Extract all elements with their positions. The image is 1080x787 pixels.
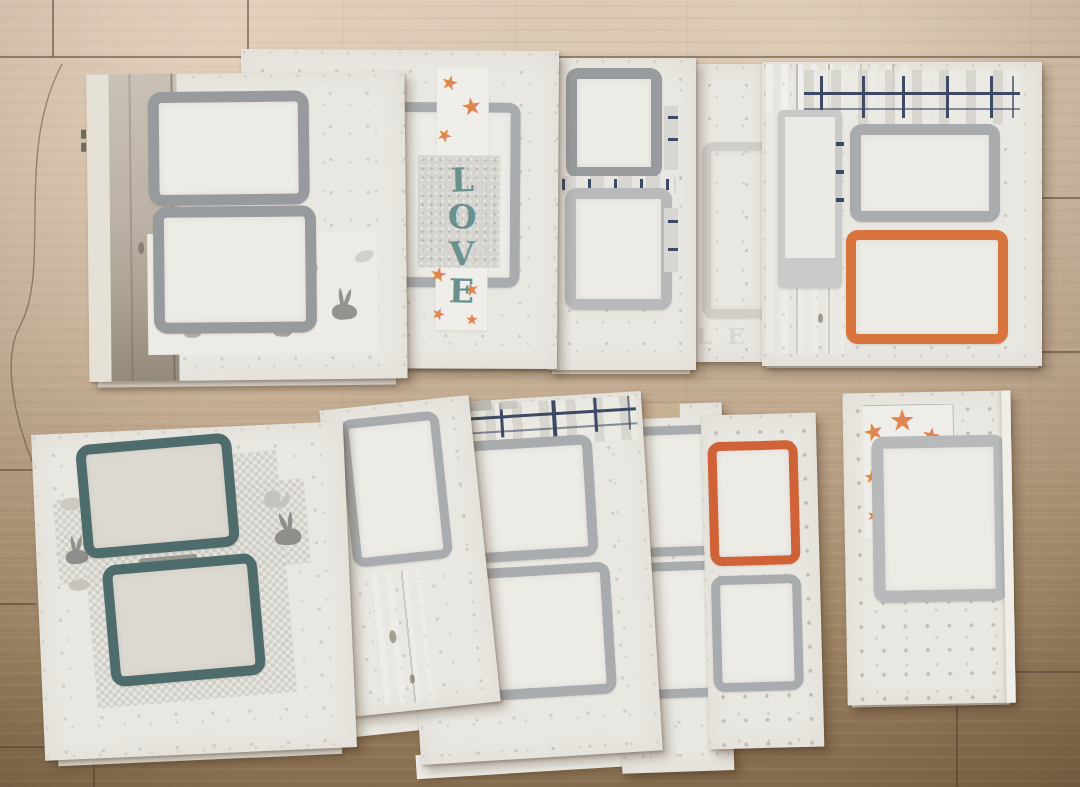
scrapbook-pages-photo: LE [0,0,1080,787]
photo-frame-teal [101,552,266,687]
page-bottom-teal [31,421,357,760]
star-icon [889,405,916,435]
photo-frame-gray-dark [566,68,662,178]
bunny-silhouette [265,506,310,550]
leaf-silhouette [66,577,91,593]
page-binding-edge [86,74,111,381]
binder-hinge [81,143,86,152]
plaid-side-tab [664,208,682,272]
plaid-tick [946,76,949,118]
photo-frame-gray [850,124,1000,222]
torn-paper-bit [499,401,517,410]
photo-frame-gray-dark [148,90,310,206]
binder-hinge [81,130,86,139]
photo-frame-orange [707,440,800,566]
wood-paper-strip [371,569,435,706]
leaf-silhouette [352,246,377,266]
polaroid-window [785,117,835,258]
plaid-tick [1012,76,1014,118]
love-word: L O V E [439,162,484,310]
wood-knot [409,674,415,683]
photo-frame-gray-dark [153,205,317,334]
plaid-tick [990,76,993,118]
love-letter-e: E [439,273,484,311]
plaid-tick [668,116,678,119]
photo-frame-teal [75,432,240,559]
photo-frame-gray [338,410,453,568]
love-letter-o: O [439,198,485,237]
page-bottom-orange [701,413,825,750]
plaid-tick [668,248,678,251]
polaroid-mat [778,110,842,288]
love-letter-v: V [439,236,483,273]
tilted-collage-group [24,415,363,767]
plaid-line [804,92,1020,95]
floor-seam [52,0,54,57]
wood-knot [389,630,397,644]
faint-letters: LE [696,322,760,349]
plaid-tick [551,400,557,438]
page-top-little: LE [688,64,766,362]
plaid-tick [836,142,844,146]
plaid-tick [668,138,678,141]
star-icon [465,312,479,327]
star-icon [439,70,461,94]
page-top-right [762,62,1042,366]
bunny-silhouette [324,284,364,322]
star-icon [459,93,484,120]
plaid-tick [836,170,844,174]
hair-strand [0,58,95,478]
plaid-tick [862,76,865,118]
photo-frame-faint [702,142,766,318]
photo-frame-gray [711,574,804,692]
photo-frame-gray [871,435,1008,603]
plaid-tick [836,198,844,202]
page-top-plaid [548,58,696,370]
photo-frame-gray-light [565,188,672,310]
wood-knot [138,242,144,254]
star-icon [433,124,456,148]
love-letter-l: L [440,162,485,200]
floor-seam [0,603,36,605]
photo-frame-orange [846,230,1008,344]
plaid-tick [668,220,678,223]
squirrel-silhouette [256,475,295,512]
page-bottom-stars [842,391,1015,706]
wood-plank-line [128,74,133,381]
wood-knot [818,314,823,323]
page-top-left [86,71,407,381]
plaid-tick [902,76,905,118]
